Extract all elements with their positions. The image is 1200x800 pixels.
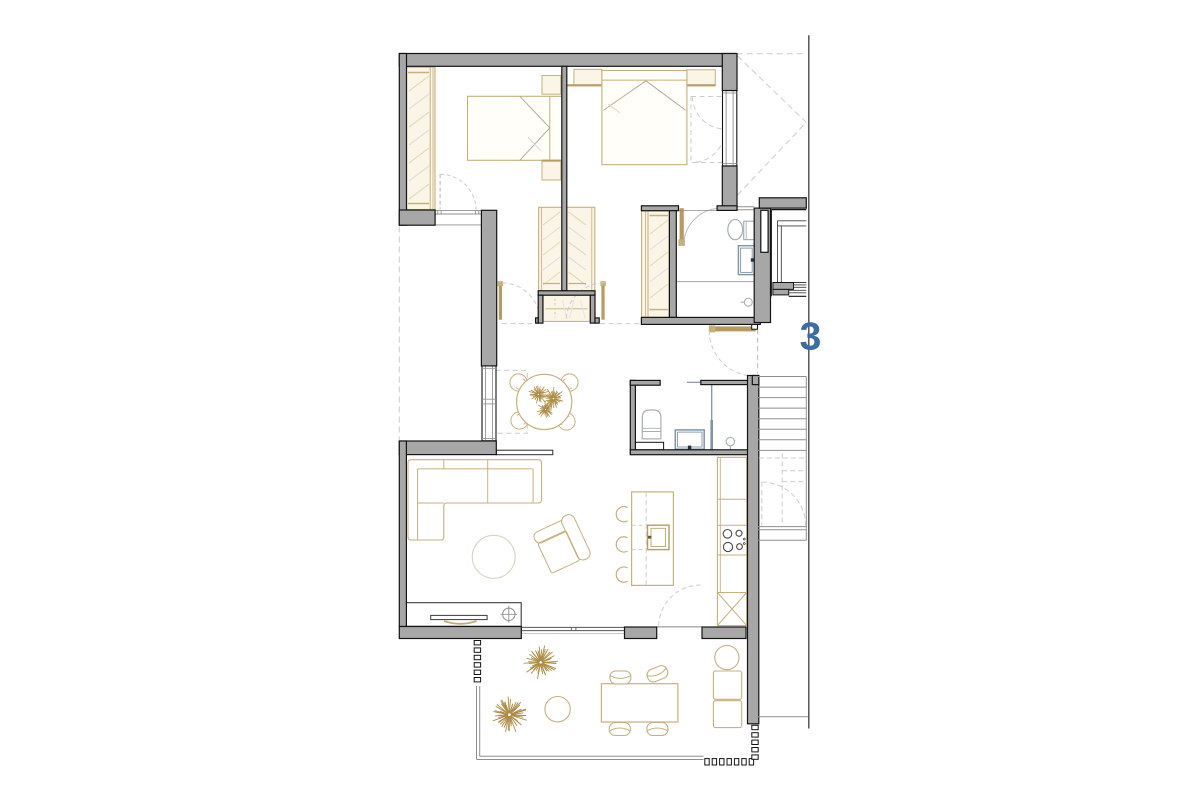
svg-text:3: 3	[800, 316, 822, 359]
